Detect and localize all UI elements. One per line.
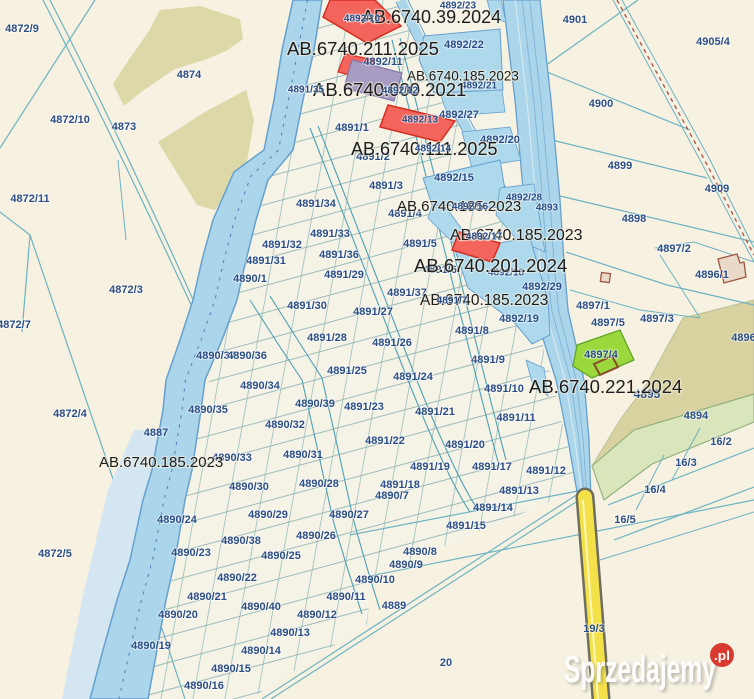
svg-text:4890/31: 4890/31	[283, 449, 323, 461]
svg-text:4891/33: 4891/33	[310, 228, 350, 240]
svg-text:4892/14: 4892/14	[415, 144, 452, 155]
svg-text:4872/4: 4872/4	[53, 408, 88, 420]
svg-text:4890/27: 4890/27	[329, 509, 369, 521]
svg-text:4892/22: 4892/22	[444, 39, 484, 51]
svg-text:4893: 4893	[536, 203, 559, 214]
svg-text:4887: 4887	[144, 427, 168, 439]
svg-text:4891/22: 4891/22	[365, 435, 405, 447]
svg-text:4872/10: 4872/10	[50, 114, 90, 126]
svg-text:4890/13: 4890/13	[270, 627, 310, 639]
svg-text:4890/10: 4890/10	[355, 574, 395, 586]
svg-text:4891/30: 4891/30	[287, 300, 327, 312]
svg-text:4891/29: 4891/29	[324, 269, 364, 281]
svg-text:4892/29: 4892/29	[522, 281, 562, 293]
svg-text:4891/14: 4891/14	[473, 502, 514, 514]
svg-text:4891/1: 4891/1	[335, 122, 369, 134]
svg-text:4891/24: 4891/24	[393, 371, 434, 383]
svg-text:4901: 4901	[563, 14, 587, 26]
svg-text:AB.6740.39.2024: AB.6740.39.2024	[362, 7, 501, 27]
svg-text:4872/9: 4872/9	[5, 23, 39, 35]
svg-text:4890/38: 4890/38	[221, 535, 261, 547]
svg-text:4891/19: 4891/19	[410, 461, 450, 473]
svg-text:4872/5: 4872/5	[38, 548, 72, 560]
svg-text:4872/3: 4872/3	[109, 284, 143, 296]
svg-text:4891/9: 4891/9	[471, 354, 505, 366]
svg-text:4891/8: 4891/8	[455, 325, 489, 337]
svg-text:4890/1: 4890/1	[233, 273, 267, 285]
svg-text:4891/35: 4891/35	[288, 85, 325, 96]
svg-text:4896/1: 4896/1	[695, 269, 729, 281]
svg-text:AB.6740.211.2025: AB.6740.211.2025	[287, 38, 439, 59]
svg-text:16/2: 16/2	[710, 436, 731, 448]
svg-text:4891/15: 4891/15	[446, 520, 486, 532]
svg-text:AB.6740.185.2023: AB.6740.185.2023	[99, 454, 223, 471]
svg-text:4891/20: 4891/20	[445, 439, 485, 451]
svg-text:4890/21: 4890/21	[187, 591, 227, 603]
svg-text:4890/39: 4890/39	[295, 398, 335, 410]
svg-text:4890/40: 4890/40	[241, 601, 281, 613]
svg-text:4892/15: 4892/15	[434, 172, 474, 184]
svg-text:4900: 4900	[589, 98, 613, 110]
svg-text:4891/28: 4891/28	[307, 332, 347, 344]
svg-text:4897/3: 4897/3	[640, 313, 674, 325]
svg-text:4891/26: 4891/26	[372, 337, 412, 349]
svg-text:4890/34: 4890/34	[240, 380, 281, 392]
svg-text:4890/24: 4890/24	[157, 514, 198, 526]
svg-text:4891/10: 4891/10	[484, 383, 524, 395]
svg-text:4890/15: 4890/15	[211, 663, 251, 675]
svg-text:4894: 4894	[684, 410, 709, 422]
svg-text:4890/19: 4890/19	[131, 640, 171, 652]
svg-text:4892/13: 4892/13	[402, 115, 439, 126]
svg-text:4905/4: 4905/4	[696, 36, 731, 48]
svg-text:4890/22: 4890/22	[217, 572, 257, 584]
svg-text:20: 20	[440, 657, 452, 669]
svg-text:4891/32: 4891/32	[262, 239, 302, 251]
svg-text:4891/11: 4891/11	[496, 412, 535, 424]
svg-text:4909: 4909	[705, 183, 729, 195]
svg-text:4890/9: 4890/9	[389, 559, 423, 571]
svg-text:4897/4: 4897/4	[584, 349, 619, 361]
svg-text:4897/1: 4897/1	[576, 300, 610, 312]
svg-text:.pl: .pl	[714, 648, 730, 663]
svg-text:4890/11: 4890/11	[326, 591, 365, 603]
svg-text:16/4: 16/4	[644, 484, 666, 496]
svg-text:4892/10: 4892/10	[344, 14, 381, 25]
svg-text:4890/12: 4890/12	[297, 609, 337, 621]
svg-text:4872/11: 4872/11	[10, 193, 49, 205]
svg-text:4874: 4874	[177, 69, 202, 81]
svg-text:4896/: 4896/	[731, 332, 754, 344]
svg-text:4891/34: 4891/34	[296, 198, 337, 210]
svg-text:4892/19: 4892/19	[499, 313, 539, 325]
svg-text:4891/12: 4891/12	[526, 465, 566, 477]
svg-text:4891/25: 4891/25	[327, 365, 367, 377]
svg-text:AB.6740.221.2024: AB.6740.221.2024	[529, 376, 682, 397]
svg-text:4890/28: 4890/28	[299, 478, 339, 490]
svg-text:4890/14: 4890/14	[241, 645, 282, 657]
svg-text:16/3: 16/3	[675, 457, 696, 469]
svg-text:4890/8: 4890/8	[403, 546, 437, 558]
svg-text:4891/21: 4891/21	[415, 406, 455, 418]
svg-text:4891/13: 4891/13	[499, 485, 539, 497]
svg-text:16/5: 16/5	[614, 514, 635, 526]
svg-text:4892/12: 4892/12	[382, 86, 419, 97]
svg-text:4891/36: 4891/36	[319, 249, 359, 261]
svg-text:4890/36: 4890/36	[227, 350, 267, 362]
svg-text:19/3: 19/3	[583, 623, 604, 635]
svg-text:4899: 4899	[608, 160, 632, 172]
svg-text:4873: 4873	[112, 121, 136, 133]
svg-text:4890/30: 4890/30	[229, 481, 269, 493]
svg-text:4891/31: 4891/31	[246, 255, 286, 267]
svg-text:4890/26: 4890/26	[296, 530, 336, 542]
svg-text:4891/5: 4891/5	[403, 238, 437, 250]
svg-text:4891/3: 4891/3	[369, 180, 403, 192]
svg-text:4892/16: 4892/16	[452, 202, 489, 213]
svg-text:4890/7: 4890/7	[375, 490, 409, 502]
svg-text:4897/2: 4897/2	[657, 243, 691, 255]
svg-text:4890/32: 4890/32	[265, 419, 305, 431]
svg-text:4891/7: 4891/7	[437, 296, 468, 307]
svg-text:4890/25: 4890/25	[261, 550, 301, 562]
svg-text:4891/23: 4891/23	[344, 401, 384, 413]
svg-text:4890/20: 4890/20	[158, 609, 198, 621]
svg-text:4890/23: 4890/23	[171, 547, 211, 559]
svg-text:4890/16: 4890/16	[184, 680, 224, 692]
svg-text:4898: 4898	[622, 213, 646, 225]
svg-text:4891/17: 4891/17	[472, 461, 512, 473]
svg-text:4872/7: 4872/7	[0, 319, 31, 331]
svg-text:4897/5: 4897/5	[591, 317, 625, 329]
svg-text:AB.6740.201.2024: AB.6740.201.2024	[414, 255, 567, 276]
svg-text:4890/35: 4890/35	[188, 404, 228, 416]
svg-text:4892/17: 4892/17	[466, 232, 503, 243]
svg-text:4889: 4889	[382, 600, 406, 612]
svg-text:Sprzedajemy: Sprzedajemy	[564, 649, 716, 691]
svg-text:4890/29: 4890/29	[248, 509, 288, 521]
svg-text:4892/27: 4892/27	[439, 109, 479, 121]
svg-text:4891/27: 4891/27	[353, 306, 393, 318]
